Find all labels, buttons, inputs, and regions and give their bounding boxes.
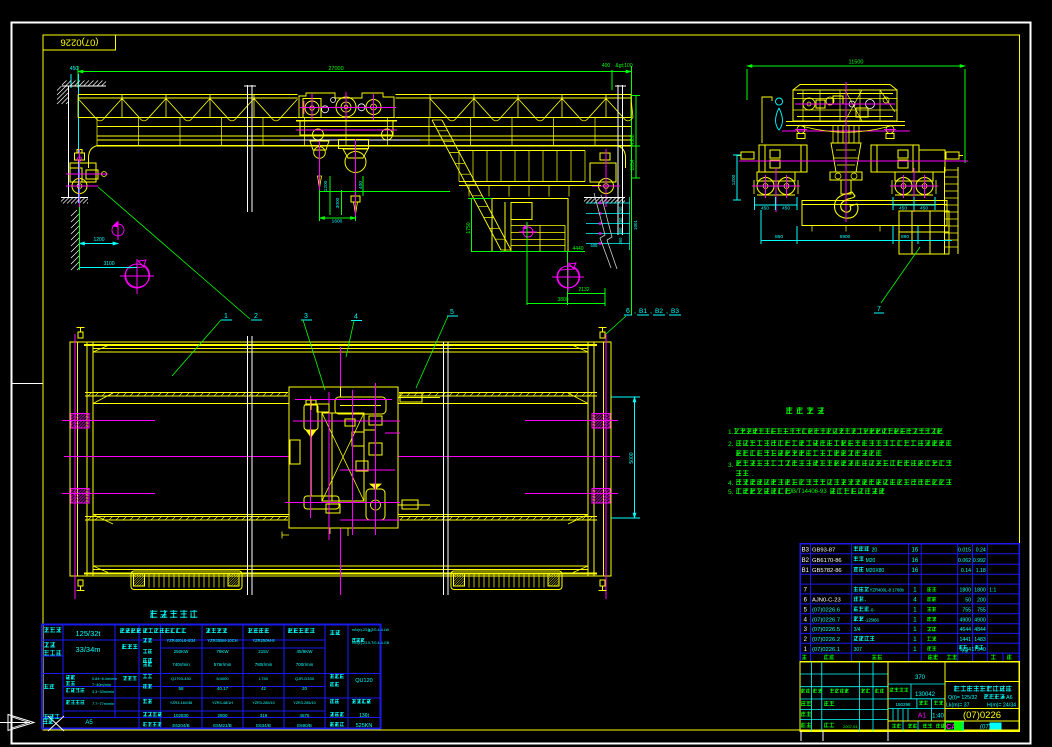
svg-text:A5: A5 bbox=[85, 720, 93, 726]
svg-text:,: , bbox=[634, 308, 636, 315]
svg-text:GB93-87: GB93-87 bbox=[812, 548, 835, 554]
svg-text:1600: 1600 bbox=[332, 219, 343, 225]
svg-text:33/34m: 33/34m bbox=[75, 645, 100, 654]
svg-text:1800: 1800 bbox=[959, 588, 971, 594]
svg-text:mN(x)-23.5-T/0-4-4-LW: mN(x)-23.5-T/0-4-4-LW bbox=[352, 628, 390, 632]
svg-text:YZR355M-10CH: YZR355M-10CH bbox=[207, 638, 237, 643]
svg-text:,: , bbox=[650, 308, 652, 315]
svg-text:&gt;100: &gt;100 bbox=[615, 63, 632, 69]
svg-text:H(m)= 24/34: H(m)= 24/34 bbox=[987, 702, 1016, 708]
svg-text:(07)0226.1: (07)0226.1 bbox=[812, 647, 840, 653]
svg-text:.: . bbox=[752, 471, 754, 478]
svg-text:755: 755 bbox=[962, 608, 971, 614]
svg-text:0.015: 0.015 bbox=[958, 548, 971, 554]
svg-text:740r/min: 740r/min bbox=[172, 662, 190, 667]
svg-text:YZR250M-8: YZR250M-8 bbox=[252, 638, 275, 643]
svg-text:(kg): (kg) bbox=[962, 649, 969, 653]
svg-text:1.18: 1.18 bbox=[976, 568, 986, 574]
svg-text:4.: 4. bbox=[728, 480, 734, 487]
svg-text:6900: 6900 bbox=[840, 234, 851, 240]
svg-text:3/4: 3/4 bbox=[854, 627, 861, 633]
svg-text:102830: 102830 bbox=[173, 713, 189, 718]
svg-text:360: 360 bbox=[618, 237, 623, 245]
svg-text:2.: 2. bbox=[728, 441, 734, 448]
svg-text:450: 450 bbox=[70, 66, 79, 72]
svg-text:4900: 4900 bbox=[974, 618, 986, 624]
svg-text:3.: 3. bbox=[728, 462, 734, 469]
svg-text:1.: 1. bbox=[728, 429, 734, 436]
svg-text:1800: 1800 bbox=[974, 588, 986, 594]
svg-text:890: 890 bbox=[901, 234, 909, 240]
svg-text:QU120: QU120 bbox=[355, 678, 372, 684]
svg-text:42: 42 bbox=[261, 686, 267, 691]
svg-text:(07)0226.5: (07)0226.5 bbox=[812, 627, 840, 633]
svg-text:1483: 1483 bbox=[974, 637, 986, 643]
svg-text:3100: 3100 bbox=[103, 261, 114, 267]
svg-text:3.3~33m/min: 3.3~33m/min bbox=[92, 690, 114, 694]
svg-text:QJR-D330: QJR-D330 bbox=[295, 676, 315, 681]
svg-text:7~40m/min: 7~40m/min bbox=[92, 683, 111, 687]
svg-text:400: 400 bbox=[358, 181, 364, 189]
svg-text:E5M21/B: E5M21/B bbox=[213, 723, 232, 728]
svg-text:4440: 4440 bbox=[572, 246, 583, 252]
svg-text:-0-: -0- bbox=[870, 608, 876, 613]
svg-text:4: 4 bbox=[354, 314, 358, 321]
svg-text:GB5782-86: GB5782-86 bbox=[812, 568, 842, 574]
svg-text:20: 20 bbox=[872, 548, 878, 554]
svg-text:1441: 1441 bbox=[959, 637, 971, 643]
svg-text:1:40: 1:40 bbox=[932, 714, 944, 720]
svg-text:B3: B3 bbox=[802, 548, 810, 554]
svg-text:5000: 5000 bbox=[629, 452, 635, 463]
svg-text:215V: 215V bbox=[258, 649, 269, 654]
svg-text:5.: 5. bbox=[728, 489, 734, 496]
svg-text:-125t66: -125t66 bbox=[865, 618, 880, 623]
svg-text:E690/B: E690/B bbox=[297, 723, 312, 728]
svg-text:0.992: 0.992 bbox=[973, 558, 986, 564]
svg-text:= A6: = A6 bbox=[1002, 695, 1013, 701]
svg-text:A1: A1 bbox=[918, 713, 927, 720]
svg-text:E634/B: E634/B bbox=[256, 723, 271, 728]
svg-text:4900: 4900 bbox=[959, 618, 971, 624]
svg-text:Lk(m)= 37: Lk(m)= 37 bbox=[946, 702, 970, 708]
svg-text:YZR3-160/38: YZR3-160/38 bbox=[170, 701, 193, 705]
svg-text:755: 755 bbox=[977, 608, 986, 614]
svg-text:307: 307 bbox=[854, 647, 863, 653]
svg-text:700r/min: 700r/min bbox=[296, 662, 314, 667]
svg-text:4644: 4644 bbox=[959, 627, 971, 633]
svg-text:50: 50 bbox=[965, 598, 971, 604]
svg-text:4844: 4844 bbox=[974, 627, 986, 633]
svg-text:1854: 1854 bbox=[630, 159, 636, 170]
svg-text:1001: 1001 bbox=[633, 219, 638, 230]
svg-text:319: 319 bbox=[260, 713, 268, 718]
svg-text:200: 200 bbox=[977, 598, 986, 604]
svg-text:B1: B1 bbox=[639, 308, 647, 315]
svg-text:E6204/B: E6204/B bbox=[172, 723, 189, 728]
svg-text:5: 5 bbox=[450, 309, 454, 316]
svg-text:1200: 1200 bbox=[93, 237, 104, 243]
svg-text:16: 16 bbox=[912, 568, 919, 574]
svg-text:508: 508 bbox=[591, 243, 599, 248]
svg-text:B2: B2 bbox=[802, 558, 810, 564]
svg-text:AJN0-C-23: AJN0-C-23 bbox=[812, 598, 841, 604]
svg-text:20: 20 bbox=[302, 686, 308, 691]
svg-text:4575: 4575 bbox=[299, 713, 310, 718]
svg-text:B2: B2 bbox=[655, 308, 663, 315]
svg-text:27000: 27000 bbox=[328, 66, 343, 72]
svg-text:0.24: 0.24 bbox=[976, 548, 986, 554]
svg-text:1: 1 bbox=[224, 313, 228, 320]
svg-text:576r/min: 576r/min bbox=[214, 662, 232, 667]
svg-text:16: 16 bbox=[912, 558, 919, 564]
svg-text:7.7~77m/min: 7.7~77m/min bbox=[92, 702, 114, 706]
svg-text:GB6170-86: GB6170-86 bbox=[812, 558, 842, 564]
svg-text:YZR400L8-8/34: YZR400L8-8/34 bbox=[167, 638, 197, 643]
svg-text:5/4000: 5/4000 bbox=[216, 676, 229, 681]
svg-text:JB/T14406-93: JB/T14406-93 bbox=[789, 489, 827, 495]
svg-text:11500: 11500 bbox=[849, 60, 864, 66]
svg-text:150298: 150298 bbox=[895, 702, 911, 707]
svg-text:Q(t)= 125/32: Q(t)= 125/32 bbox=[948, 695, 977, 701]
svg-text:(07)0226.2: (07)0226.2 bbox=[812, 637, 840, 643]
svg-text:2132: 2132 bbox=[578, 287, 589, 293]
svg-text:370: 370 bbox=[915, 675, 926, 681]
svg-text:1750: 1750 bbox=[466, 222, 472, 233]
svg-text:3: 3 bbox=[304, 313, 308, 320]
svg-text:525KN: 525KN bbox=[356, 723, 373, 729]
svg-text:,: , bbox=[666, 308, 668, 315]
svg-text:1200: 1200 bbox=[323, 180, 329, 191]
svg-text:2: 2 bbox=[254, 313, 258, 320]
svg-text:YZR3-285/10: YZR3-285/10 bbox=[252, 701, 275, 705]
svg-text:125/32t: 125/32t bbox=[75, 629, 101, 638]
svg-text:YZR400L-8 1700b: YZR400L-8 1700b bbox=[870, 588, 905, 593]
svg-text:1200: 1200 bbox=[731, 174, 737, 185]
svg-text:(07)0226: (07)0226 bbox=[963, 710, 1001, 721]
svg-text:450: 450 bbox=[782, 206, 790, 212]
svg-text:(07)0226.7: (07)0226.7 bbox=[812, 618, 840, 624]
svg-text:YZR3-285/10: YZR3-285/10 bbox=[293, 701, 316, 705]
svg-text:1:1: 1:1 bbox=[989, 588, 996, 594]
svg-text:136t: 136t bbox=[359, 713, 369, 719]
svg-text:YZR3-48/1H: YZR3-48/1H bbox=[212, 701, 233, 705]
svg-text:B3: B3 bbox=[671, 308, 679, 315]
svg-text:0.84~8.4m/min: 0.84~8.4m/min bbox=[92, 677, 117, 681]
svg-text:7: 7 bbox=[877, 306, 881, 313]
svg-text:860: 860 bbox=[775, 234, 783, 240]
svg-text:2800: 2800 bbox=[217, 713, 228, 718]
svg-text:0.062: 0.062 bbox=[958, 558, 971, 564]
svg-text:450: 450 bbox=[761, 206, 769, 212]
svg-text:780r/min: 780r/min bbox=[255, 662, 273, 667]
svg-text:0.14: 0.14 bbox=[961, 568, 971, 574]
svg-text:(07)0226: (07)0226 bbox=[60, 37, 98, 48]
svg-text:M20X80: M20X80 bbox=[866, 568, 885, 574]
svg-text:(07): (07) bbox=[980, 725, 991, 731]
svg-text:16: 16 bbox=[912, 548, 919, 554]
svg-text:2007.04: 2007.04 bbox=[843, 724, 858, 729]
svg-text:17940: 17940 bbox=[971, 647, 986, 653]
svg-text:3000: 3000 bbox=[335, 197, 341, 208]
svg-text:40.17: 40.17 bbox=[217, 686, 229, 691]
svg-text:L750: L750 bbox=[259, 676, 269, 681]
svg-text:QJ793-430: QJ793-430 bbox=[171, 676, 192, 681]
svg-text:450: 450 bbox=[920, 206, 928, 212]
svg-text:B1: B1 bbox=[802, 568, 810, 574]
svg-text:78KW: 78KW bbox=[216, 649, 229, 654]
svg-text:58: 58 bbox=[178, 686, 184, 691]
svg-text:350: 350 bbox=[618, 227, 623, 235]
svg-text:450: 450 bbox=[899, 206, 907, 212]
svg-text:(07)0226.6: (07)0226.6 bbox=[812, 608, 840, 614]
svg-text:250KW: 250KW bbox=[174, 649, 190, 654]
svg-text:130042: 130042 bbox=[915, 692, 936, 698]
svg-text:45/9KW: 45/9KW bbox=[296, 649, 313, 654]
svg-text:6: 6 bbox=[626, 308, 630, 315]
svg-text:250: 250 bbox=[618, 206, 623, 214]
svg-text:400: 400 bbox=[602, 63, 611, 69]
svg-text:M20: M20 bbox=[866, 558, 876, 564]
svg-text:250: 250 bbox=[618, 217, 623, 225]
